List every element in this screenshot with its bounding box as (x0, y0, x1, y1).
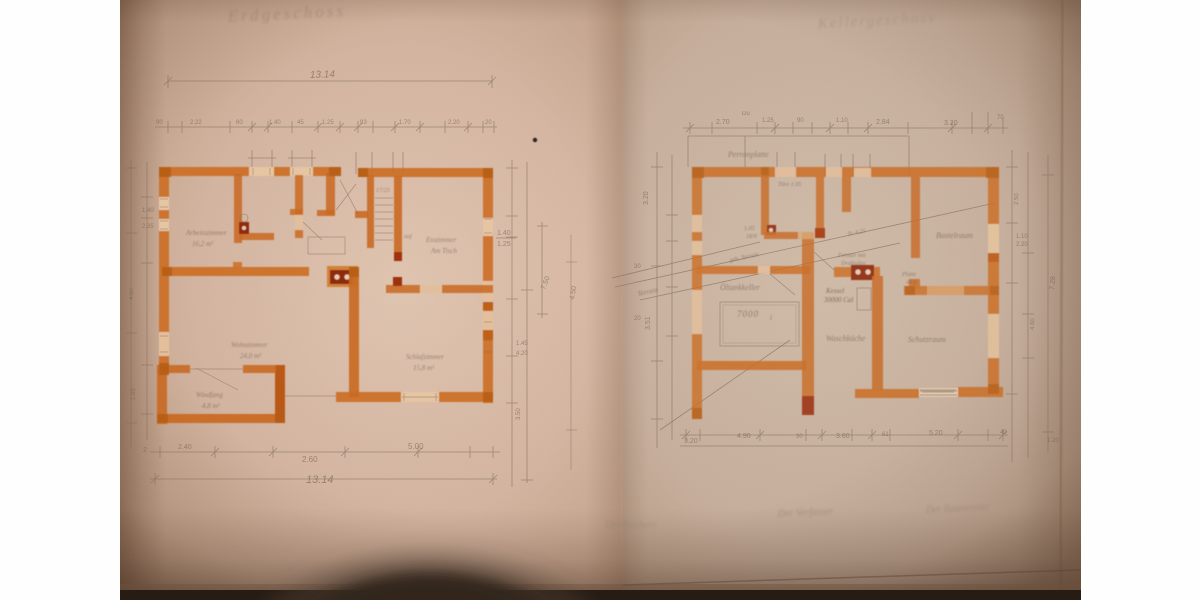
svg-text:1.25: 1.25 (762, 118, 774, 124)
svg-text:2.40: 2.40 (178, 444, 192, 451)
svg-text:1.40: 1.40 (269, 120, 281, 126)
svg-text:4.90: 4.90 (737, 433, 751, 440)
svg-text:Windfang: Windfang (196, 391, 223, 399)
svg-text:7000: 7000 (737, 309, 759, 319)
svg-text:46.6: 46.6 (906, 279, 917, 286)
svg-text:Der Bauherr: Der Bauherr (604, 520, 656, 531)
svg-text:Am Tisch: Am Tisch (430, 247, 457, 255)
svg-text:1.10: 1.10 (1016, 234, 1028, 240)
svg-text:1.10: 1.10 (836, 118, 848, 124)
svg-text:2.22: 2.22 (190, 120, 202, 126)
svg-text:1.40: 1.40 (142, 208, 154, 214)
svg-text:Schutzraum: Schutzraum (908, 335, 946, 344)
svg-text:Bastelraum: Bastelraum (936, 231, 973, 240)
svg-text:40: 40 (1000, 430, 1007, 436)
svg-text:3.51: 3.51 (645, 316, 652, 330)
svg-text:30: 30 (796, 434, 803, 440)
svg-text:13.14: 13.14 (310, 69, 336, 81)
svg-text:20: 20 (485, 120, 492, 126)
svg-text:4.50: 4.50 (129, 288, 135, 300)
svg-text:Türe 1.05: Türe 1.05 (778, 182, 801, 188)
svg-text:Arbeitszimmer: Arbeitszimmer (185, 229, 227, 237)
svg-text:93: 93 (360, 120, 367, 126)
svg-text:2.60: 2.60 (302, 455, 318, 464)
svg-text:Kessel: Kessel (825, 287, 844, 295)
svg-text:30000 Cal: 30000 Cal (823, 296, 853, 304)
svg-text:2.50: 2.50 (1014, 193, 1020, 206)
svg-text:2.70: 2.70 (716, 119, 730, 126)
svg-text:l: l (770, 314, 772, 322)
svg-text:3.20: 3.20 (944, 120, 958, 127)
svg-text:5.00: 5.00 (408, 442, 424, 451)
svg-text:4.60: 4.60 (1030, 318, 1036, 331)
svg-text:Platte: Platte (901, 272, 917, 278)
svg-text:3.20: 3.20 (643, 191, 650, 205)
svg-text:Perronplatte: Perronplatte (727, 150, 769, 159)
svg-text:20: 20 (634, 316, 641, 322)
svg-text:2.20: 2.20 (448, 120, 460, 126)
svg-text:3.20: 3.20 (684, 438, 698, 445)
svg-text:1.05: 1.05 (744, 226, 755, 232)
svg-text:1.20: 1.20 (1047, 438, 1059, 444)
svg-text:1.45: 1.45 (516, 341, 528, 347)
svg-text:17/25: 17/25 (376, 188, 390, 194)
svg-text:7.28: 7.28 (1049, 276, 1057, 290)
svg-text:Fenster mit: Fenster mit (837, 253, 866, 259)
svg-text:90: 90 (797, 118, 804, 124)
svg-text:4,8 m²: 4,8 m² (202, 402, 221, 410)
svg-text:15,8 m²: 15,8 m² (413, 364, 435, 372)
svg-text:61: 61 (882, 432, 889, 438)
svg-text:60: 60 (236, 120, 243, 126)
svg-text:4.20: 4.20 (516, 351, 528, 357)
svg-text:24,0 m²: 24,0 m² (240, 352, 262, 360)
svg-text:70: 70 (997, 115, 1004, 121)
svg-text:Schlafzimmer: Schlafzimmer (406, 353, 444, 361)
svg-text:16,2 m²: 16,2 m² (192, 240, 214, 248)
svg-text:45: 45 (297, 120, 304, 126)
svg-text:1.25: 1.25 (322, 120, 334, 126)
svg-text:Esszimmer: Esszimmer (425, 236, 457, 244)
svg-text:Wohnzimmer: Wohnzimmer (231, 341, 268, 349)
svg-text:Waschküche: Waschküche (826, 334, 866, 343)
svg-text:2: 2 (143, 447, 147, 454)
svg-text:1.95: 1.95 (131, 388, 137, 400)
svg-text:Öltankkeller: Öltankkeller (720, 283, 761, 292)
svg-text:auf: auf (404, 233, 413, 240)
svg-text:2.20: 2.20 (1016, 242, 1028, 248)
svg-text:1.70: 1.70 (399, 120, 411, 126)
svg-text:1.40: 1.40 (497, 230, 511, 237)
svg-text:2.35: 2.35 (142, 224, 154, 230)
svg-text:Dü: Dü (742, 111, 750, 117)
svg-text:18/9: 18/9 (746, 234, 757, 240)
svg-text:3.60: 3.60 (836, 433, 850, 440)
svg-text:3.50: 3.50 (516, 408, 522, 420)
svg-text:1.25: 1.25 (497, 241, 511, 248)
svg-text:30: 30 (634, 264, 641, 270)
svg-text:5.20: 5.20 (929, 430, 943, 437)
svg-text:90: 90 (156, 120, 163, 126)
svg-text:2.84: 2.84 (876, 119, 890, 126)
svg-text:13.14: 13.14 (306, 474, 334, 486)
svg-text:Drahtglas: Drahtglas (840, 261, 866, 267)
